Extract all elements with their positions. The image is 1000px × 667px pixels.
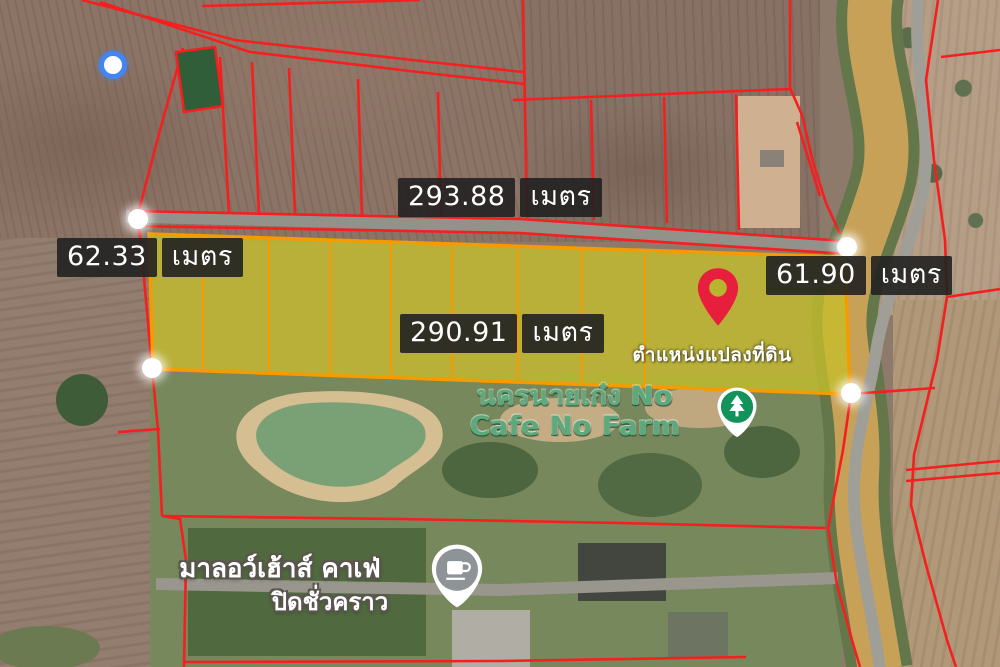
coffee-cup-marker-icon [428, 543, 486, 609]
location-pin[interactable] [695, 266, 741, 332]
measurement-value: 293.88 [398, 178, 515, 217]
tree-marker-icon [714, 386, 760, 438]
measurement-label-left: 62.33 เมตร [57, 238, 243, 277]
measurement-unit: เมตร [520, 178, 601, 217]
measurement-value: 62.33 [57, 238, 157, 277]
poi-marker-farm[interactable] [714, 386, 760, 442]
current-location-dot [99, 51, 127, 79]
parcel-vertex-dot[interactable] [142, 358, 162, 378]
parcel-vertex-dot[interactable] [128, 209, 148, 229]
parcel-vertex-dot[interactable] [837, 237, 857, 257]
poi-farm-line2: Cafe No Farm [430, 412, 720, 442]
measurement-value: 61.90 [766, 256, 866, 295]
measurement-label-center: 290.91 เมตร [400, 314, 604, 353]
satellite-map[interactable]: 293.88 เมตร 62.33 เมตร 61.90 เมตร 290.91… [0, 0, 1000, 667]
measurement-unit: เมตร [871, 256, 952, 295]
measurement-label-top: 293.88 เมตร [398, 178, 602, 217]
red-map-pin-icon [695, 266, 741, 328]
poi-label-farm[interactable]: นครนายเก๋ง No Cafe No Farm [430, 382, 720, 441]
measurement-unit: เมตร [522, 314, 603, 353]
measurement-label-right: 61.90 เมตร [766, 256, 952, 295]
poi-farm-line1: นครนายเก๋ง No [430, 382, 720, 412]
measurement-value: 290.91 [400, 314, 517, 353]
parcel-vertex-dot[interactable] [841, 383, 861, 403]
poi-marker-cafe[interactable] [428, 543, 486, 613]
pin-caption: ตำแหน่งแปลงที่ดิน [612, 340, 812, 370]
measurement-unit: เมตร [162, 238, 243, 277]
